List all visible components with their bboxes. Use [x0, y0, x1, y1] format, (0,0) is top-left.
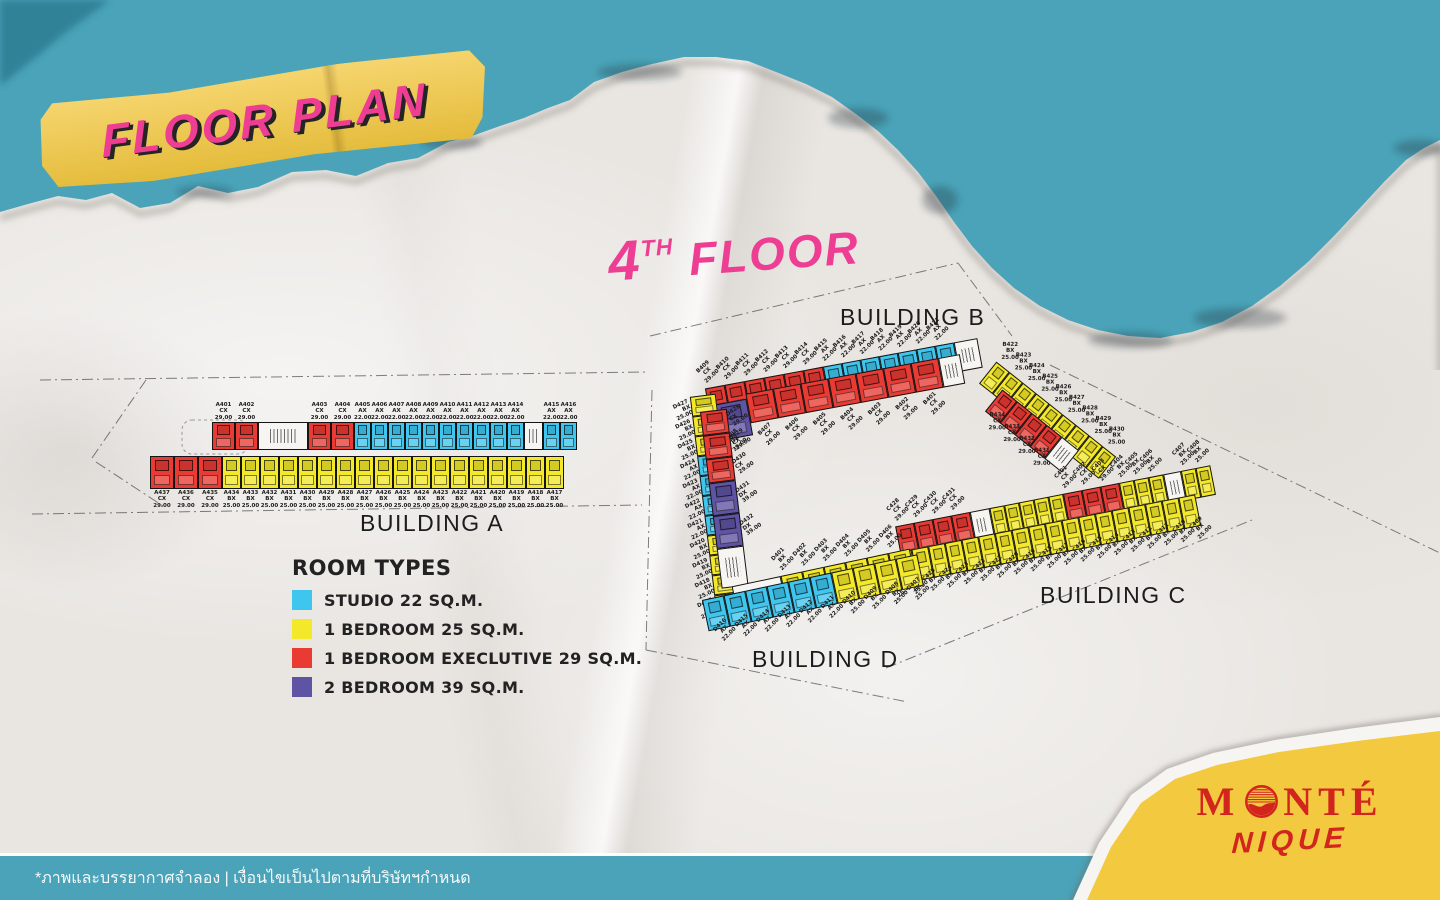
unit-cell	[439, 422, 456, 450]
unit-label: A406 AX 22.00	[371, 400, 388, 422]
unit-label: A413 AX 22.00	[490, 400, 507, 422]
legend-item: 2 BEDROOM 39 SQ.M.	[292, 677, 642, 697]
unit-cell	[212, 422, 235, 450]
unit-cell	[526, 456, 545, 489]
unit-cell	[543, 422, 560, 450]
unit-label: A408 AX 22.00	[405, 400, 422, 422]
unit-label: A421 BX 25.00	[469, 489, 488, 511]
unit-label: A401 CX 29.00	[212, 400, 235, 422]
legend-label: 1 BEDROOM 25 SQ.M.	[324, 620, 525, 639]
disclaimer-text: *ภาพและบรรยากาศจำลอง | เงื่อนไขเป็นไปตาม…	[35, 866, 471, 891]
unit-cell	[490, 422, 507, 450]
floor-word: FLOOR	[687, 221, 861, 285]
building-a-label: BUILDING A	[360, 510, 504, 537]
unit-label: A430 BX 25.00	[298, 489, 317, 511]
unit-cell	[405, 422, 422, 450]
logo-sun-wave-icon	[1243, 783, 1280, 820]
legend-title: ROOM TYPES	[292, 556, 642, 580]
unit-cell	[279, 456, 298, 489]
unit-label	[258, 400, 308, 422]
unit-label: A434 BX 25.00	[222, 489, 241, 511]
unit-cell	[150, 456, 174, 489]
unit-cell	[713, 513, 744, 549]
unit-label: A437 CX 29.00	[150, 489, 174, 511]
legend-swatch	[292, 648, 312, 668]
logo-monte-m: M	[1196, 778, 1240, 825]
unit-label: A428 BX 25.00	[336, 489, 355, 511]
unit-label: A410 AX 22.00	[439, 400, 456, 422]
unit-label: A411 AX 22.00	[456, 400, 473, 422]
unit-cell	[412, 456, 431, 489]
unit-cell	[431, 456, 450, 489]
unit-cell	[235, 422, 258, 450]
unit-cell	[473, 422, 490, 450]
unit-label: D407 BX 25.00	[902, 586, 929, 617]
unit-label: A403 CX 29.00	[308, 400, 331, 422]
unit-label: A422 BX 25.00	[450, 489, 469, 511]
unit-cell	[507, 422, 524, 450]
unit-cell	[393, 456, 412, 489]
unit-cell	[355, 456, 374, 489]
footer-bar: *ภาพและบรรยากาศจำลอง | เงื่อนไขเป็นไปตาม…	[0, 856, 1440, 900]
unit-label: A424 BX 25.00	[412, 489, 431, 511]
core-cell	[258, 422, 308, 450]
unit-cell	[371, 422, 388, 450]
unit-label: A423 BX 25.00	[431, 489, 450, 511]
unit-label: A415 AX 22.00	[543, 400, 560, 422]
logo-monte-nte: NTÉ	[1283, 778, 1383, 825]
legend-label: 1 BEDROOM EXECLUTIVE 29 SQ.M.	[324, 649, 642, 668]
legend-swatch	[292, 677, 312, 697]
unit-cell	[317, 456, 336, 489]
legend-item: 1 BEDROOM EXECLUTIVE 29 SQ.M.	[292, 648, 642, 668]
unit-label: A409 AX 22.00	[422, 400, 439, 422]
unit-cell	[354, 422, 371, 450]
building-strip-a-top_row: A401 CX 29.00A402 CX 29.00A403 CX 29.00A…	[212, 400, 577, 450]
unit-label: A433 BX 25.00	[241, 489, 260, 511]
core-cell	[524, 422, 543, 450]
unit-cell	[241, 456, 260, 489]
unit-label: A412 AX 22.00	[473, 400, 490, 422]
unit-cell	[331, 422, 354, 450]
unit-label: A429 BX 25.00	[317, 489, 336, 511]
unit-label: A417 BX 25.00	[545, 489, 564, 511]
logo-monte: M NTÉ	[1158, 778, 1422, 825]
unit-label: C408 BX 25.00	[1190, 439, 1210, 468]
unit-cell	[260, 456, 279, 489]
brand-logo: M NTÉ NIQUE	[1158, 778, 1422, 858]
unit-label: A432 BX 25.00	[260, 489, 279, 511]
unit-label: A427 BX 25.00	[355, 489, 374, 511]
unit-cell	[488, 456, 507, 489]
unit-cell	[308, 422, 331, 450]
unit-cell	[507, 456, 526, 489]
unit-label: A414 AX 22.00	[507, 400, 524, 422]
room-types-legend: ROOM TYPES STUDIO 22 SQ.M.1 BEDROOM 25 S…	[292, 556, 642, 706]
unit-cell	[198, 456, 222, 489]
unit-labels: A401 CX 29.00A402 CX 29.00A403 CX 29.00A…	[212, 400, 577, 422]
unit-cell	[469, 456, 488, 489]
unit-label: A416 AX 22.00	[560, 400, 577, 422]
unit-cell	[298, 456, 317, 489]
unit-label: A404 CX 29.00	[331, 400, 354, 422]
unit-label: A425 BX 25.00	[393, 489, 412, 511]
unit-cell	[545, 456, 564, 489]
unit-label: A431 BX 25.00	[279, 489, 298, 511]
legend-swatch	[292, 619, 312, 639]
floor-ordinal-suffix: TH	[640, 233, 674, 261]
floor-number: 4	[606, 228, 643, 293]
floor-plan-poster: FLOOR PLAN 4TH FLOOR A401 CX 29.00A402 C…	[0, 0, 1440, 900]
unit-cell	[456, 422, 473, 450]
unit-label: A402 CX 29.00	[235, 400, 258, 422]
legend-label: 2 BEDROOM 39 SQ.M.	[324, 678, 525, 697]
legend-item: STUDIO 22 SQ.M.	[292, 590, 642, 610]
unit-row	[150, 456, 564, 489]
building-strip-a-bottom_row: A437 CX 29.00A436 CX 29.00A435 CX 29.00A…	[150, 456, 564, 511]
unit-cell	[374, 456, 393, 489]
building-d-label: BUILDING D	[752, 646, 899, 673]
unit-cell	[388, 422, 405, 450]
unit-cell	[222, 456, 241, 489]
unit-label: A405 AX 22.00	[354, 400, 371, 422]
building-b-label: BUILDING B	[840, 304, 985, 331]
unit-label: A418 BX 25.00	[526, 489, 545, 511]
unit-label: A407 AX 22.00	[388, 400, 405, 422]
unit-cell	[560, 422, 577, 450]
logo-nique: NIQUE	[1157, 818, 1422, 865]
legend-items: STUDIO 22 SQ.M.1 BEDROOM 25 SQ.M.1 BEDRO…	[292, 590, 642, 697]
unit-label: A435 CX 29.00	[198, 489, 222, 511]
unit-label: A420 BX 25.00	[488, 489, 507, 511]
legend-swatch	[292, 590, 312, 610]
legend-label: STUDIO 22 SQ.M.	[324, 591, 483, 610]
unit-label: D431 DX 39.00	[736, 477, 766, 513]
unit-cell	[422, 422, 439, 450]
unit-label: A426 BX 25.00	[374, 489, 393, 511]
unit-label	[524, 400, 543, 422]
unit-cell	[174, 456, 198, 489]
unit-cell	[336, 456, 355, 489]
unit-row	[212, 422, 577, 450]
building-c-label: BUILDING C	[1040, 582, 1187, 609]
legend-item: 1 BEDROOM 25 SQ.M.	[292, 619, 642, 639]
unit-label: A436 CX 29.00	[174, 489, 198, 511]
unit-labels: A437 CX 29.00A436 CX 29.00A435 CX 29.00A…	[150, 489, 564, 511]
unit-label: D432 DX 39.00	[740, 510, 770, 546]
unit-cell	[709, 480, 740, 516]
unit-label: D430 CX 29.00	[733, 453, 762, 480]
unit-cell	[450, 456, 469, 489]
unit-label: A419 BX 25.00	[507, 489, 526, 511]
